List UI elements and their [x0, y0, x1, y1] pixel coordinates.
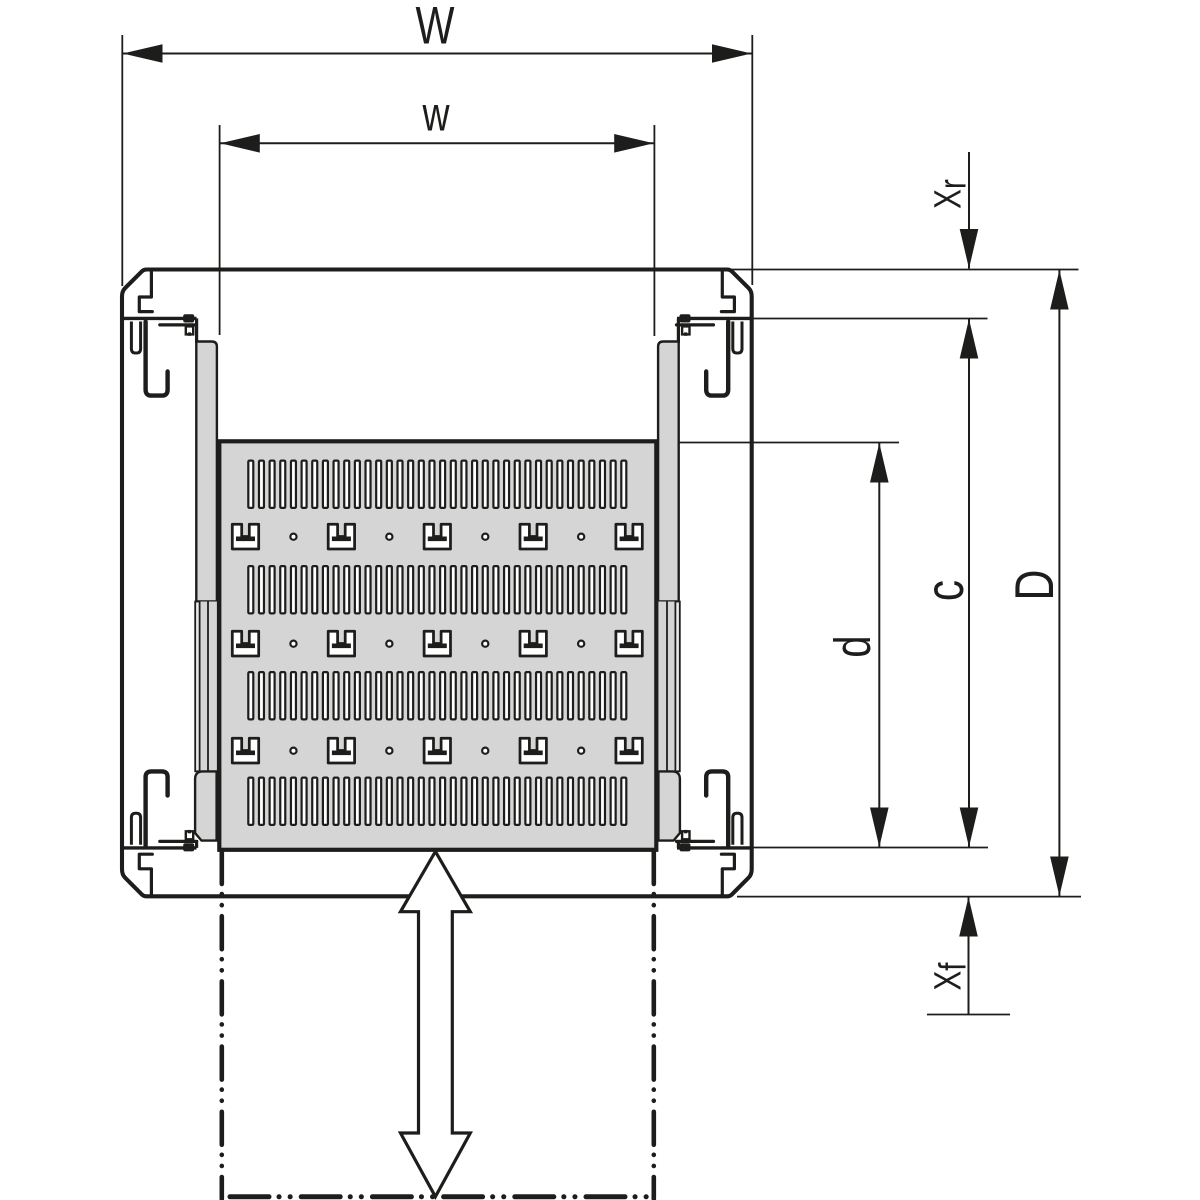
svg-text:w: w — [422, 88, 451, 142]
svg-text:c: c — [915, 580, 975, 601]
svg-text:Xf: Xf — [927, 962, 974, 990]
svg-text:W: W — [415, 0, 454, 56]
svg-text:d: d — [824, 636, 881, 658]
svg-text:D: D — [1004, 570, 1065, 601]
svg-text:Xr: Xr — [927, 179, 974, 209]
